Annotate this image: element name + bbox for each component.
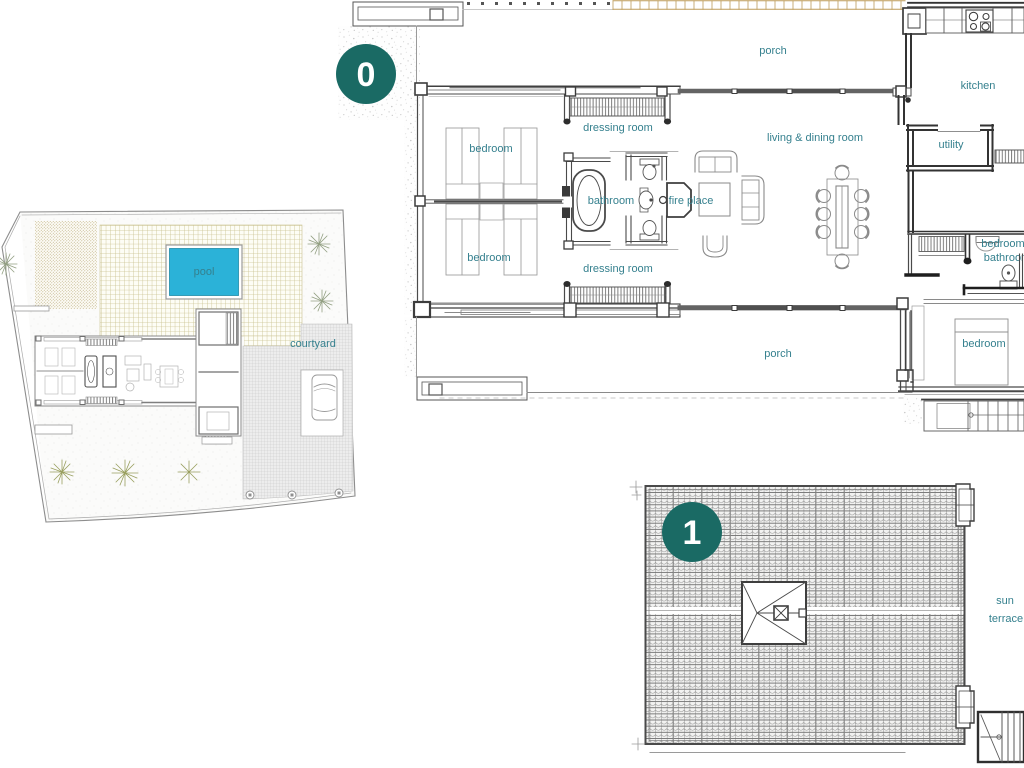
- svg-text:pool: pool: [194, 266, 215, 278]
- svg-text:kitchen: kitchen: [961, 80, 996, 92]
- svg-text:porch: porch: [764, 348, 792, 360]
- svg-text:bathroom: bathroom: [984, 252, 1024, 264]
- svg-text:bedroom: bedroom: [467, 252, 510, 264]
- svg-text:terrace: terrace: [989, 613, 1023, 625]
- svg-text:1: 1: [683, 514, 702, 552]
- svg-text:bedroom: bedroom: [469, 143, 512, 155]
- svg-text:courtyard: courtyard: [290, 338, 336, 350]
- svg-text:sun: sun: [996, 595, 1014, 607]
- svg-text:bedroom: bedroom: [981, 238, 1024, 250]
- svg-text:porch: porch: [759, 45, 787, 57]
- svg-text:dressing room: dressing room: [583, 263, 653, 275]
- svg-text:dressing room: dressing room: [583, 122, 653, 134]
- svg-text:bathroom: bathroom: [588, 195, 634, 207]
- svg-text:0: 0: [357, 56, 376, 94]
- svg-text:living & dining room: living & dining room: [767, 132, 863, 144]
- svg-text:utility: utility: [938, 139, 964, 151]
- svg-text:fire place: fire place: [669, 195, 714, 207]
- svg-text:bedroom: bedroom: [962, 338, 1005, 350]
